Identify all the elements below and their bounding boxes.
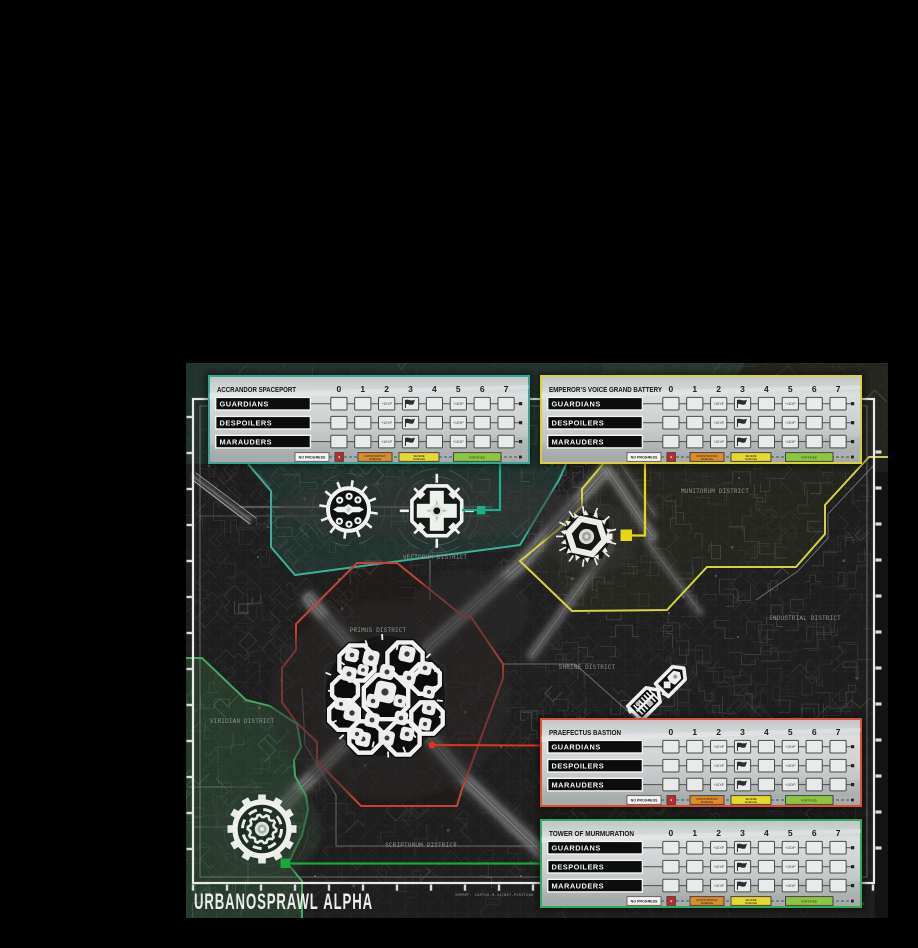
svg-text:URBANOSPRAWL ALPHA: URBANOSPRAWL ALPHA — [194, 889, 373, 914]
svg-text:3: 3 — [740, 828, 745, 838]
svg-text:FORTIFIED: FORTIFIED — [801, 455, 818, 459]
svg-text:+1EXP: +1EXP — [785, 440, 796, 444]
svg-text:0: 0 — [669, 384, 674, 394]
svg-text:2: 2 — [716, 727, 721, 737]
svg-text:MARAUDERS: MARAUDERS — [552, 881, 605, 890]
svg-text:0: 0 — [669, 727, 674, 737]
svg-text:+1EXP: +1EXP — [713, 440, 724, 444]
svg-text:5: 5 — [788, 828, 793, 838]
svg-text:7: 7 — [504, 384, 509, 394]
svg-text:FORTIFIED: FORTIFIED — [469, 455, 486, 459]
svg-text:DAMAGE: DAMAGE — [745, 901, 757, 905]
svg-text:7: 7 — [836, 727, 841, 737]
svg-text:1: 1 — [692, 384, 697, 394]
svg-text:GUARDIANS: GUARDIANS — [552, 844, 601, 853]
svg-text:DESPOILERS: DESPOILERS — [552, 762, 605, 771]
svg-text:2: 2 — [716, 384, 721, 394]
svg-text:4: 4 — [764, 828, 769, 838]
svg-text:DAMAGE: DAMAGE — [701, 800, 713, 804]
svg-text:NO PROGRESS: NO PROGRESS — [631, 900, 658, 904]
svg-text:6: 6 — [812, 727, 817, 737]
svg-text:+1EXP: +1EXP — [453, 440, 464, 444]
svg-text:6: 6 — [480, 384, 485, 394]
svg-text:3: 3 — [740, 727, 745, 737]
svg-text:FORTIFIED: FORTIFIED — [801, 899, 818, 903]
svg-text:TOWER OF MURMURATION: TOWER OF MURMURATION — [549, 829, 634, 838]
svg-text:+1EXP: +1EXP — [381, 421, 392, 425]
svg-text:MARAUDERS: MARAUDERS — [552, 780, 605, 789]
svg-text:5: 5 — [788, 727, 793, 737]
svg-text:+1EXP: +1EXP — [785, 402, 796, 406]
svg-text:NO PROGRESS: NO PROGRESS — [299, 456, 326, 460]
svg-text:5: 5 — [456, 384, 461, 394]
svg-text:3: 3 — [408, 384, 413, 394]
svg-text:DAMAGE: DAMAGE — [413, 457, 425, 461]
svg-text:▼: ▼ — [670, 455, 673, 459]
svg-text:+1EXP: +1EXP — [381, 440, 392, 444]
svg-text:7: 7 — [836, 384, 841, 394]
svg-text:DESPOILERS: DESPOILERS — [552, 863, 605, 872]
svg-text:DAMAGE: DAMAGE — [701, 901, 713, 905]
svg-text:VECTORUM DISTRICT: VECTORUM DISTRICT — [403, 554, 467, 561]
svg-text:+1EXP: +1EXP — [713, 846, 724, 850]
svg-text:SCRIPTORUM DISTRICT: SCRIPTORUM DISTRICT — [385, 842, 457, 849]
svg-text:+1EXP: +1EXP — [713, 865, 724, 869]
svg-text:GUARDIANS: GUARDIANS — [552, 400, 601, 409]
svg-text:SHRINE DISTRICT: SHRINE DISTRICT — [559, 664, 616, 671]
svg-text:4: 4 — [432, 384, 437, 394]
svg-text:0: 0 — [337, 384, 342, 394]
svg-text:EMPEROR’S VOICE GRAND BATTERY: EMPEROR’S VOICE GRAND BATTERY — [549, 385, 662, 394]
svg-text:PRAEFECTUS BASTION: PRAEFECTUS BASTION — [549, 728, 621, 737]
svg-text:+1EXP: +1EXP — [785, 421, 796, 425]
svg-text:6: 6 — [812, 828, 817, 838]
svg-text:+1EXP: +1EXP — [713, 783, 724, 787]
svg-text:DAMAGE: DAMAGE — [369, 457, 381, 461]
svg-text:1: 1 — [360, 384, 365, 394]
svg-text:NO PROGRESS: NO PROGRESS — [631, 799, 658, 803]
svg-text:+1EXP: +1EXP — [785, 764, 796, 768]
svg-text:MARAUDERS: MARAUDERS — [552, 437, 605, 446]
svg-text:+1EXP: +1EXP — [453, 402, 464, 406]
svg-text:▼: ▼ — [670, 798, 673, 802]
svg-text:ACCRANDOR SPACEPORT: ACCRANDOR SPACEPORT — [217, 385, 296, 394]
svg-text:5: 5 — [788, 384, 793, 394]
svg-text:GUARDIANS: GUARDIANS — [552, 743, 601, 752]
svg-text:2: 2 — [384, 384, 389, 394]
svg-text:0: 0 — [669, 828, 674, 838]
svg-text:FORTIFIED: FORTIFIED — [801, 798, 818, 802]
svg-text:VIRIDIAN DISTRICT: VIRIDIAN DISTRICT — [210, 718, 274, 725]
svg-text:+1EXP: +1EXP — [785, 783, 796, 787]
svg-text:GUARDIANS: GUARDIANS — [220, 400, 269, 409]
svg-text:1: 1 — [692, 727, 697, 737]
svg-text:▼: ▼ — [338, 455, 341, 459]
svg-text:2: 2 — [716, 828, 721, 838]
svg-text:PRIMUS DISTRICT: PRIMUS DISTRICT — [350, 627, 407, 634]
svg-text:DAMAGE: DAMAGE — [701, 457, 713, 461]
svg-text:+1EXP: +1EXP — [785, 865, 796, 869]
svg-text:INDUSTRIAL DISTRICT: INDUSTRIAL DISTRICT — [769, 615, 841, 622]
svg-text:DAMAGE: DAMAGE — [745, 800, 757, 804]
svg-text:DAMAGE: DAMAGE — [745, 457, 757, 461]
svg-text:+1EXP: +1EXP — [713, 884, 724, 888]
svg-text:+1EXP: +1EXP — [713, 745, 724, 749]
svg-text:3: 3 — [740, 384, 745, 394]
svg-text:+1EXP: +1EXP — [453, 421, 464, 425]
svg-text:DESPOILERS: DESPOILERS — [552, 419, 605, 428]
svg-text:DESPOILERS: DESPOILERS — [220, 419, 273, 428]
svg-text:MARAUDERS: MARAUDERS — [220, 437, 273, 446]
svg-text:IMPREF. CARTOG-M-41/NE7-POSITO: IMPREF. CARTOG-M-41/NE7-POSITONS — [455, 893, 534, 898]
svg-text:1: 1 — [692, 828, 697, 838]
svg-text:7: 7 — [836, 828, 841, 838]
svg-text:4: 4 — [764, 384, 769, 394]
svg-text:+1EXP: +1EXP — [785, 884, 796, 888]
svg-text:+1EXP: +1EXP — [713, 764, 724, 768]
svg-text:+1EXP: +1EXP — [785, 745, 796, 749]
svg-text:6: 6 — [812, 384, 817, 394]
svg-text:4: 4 — [764, 727, 769, 737]
svg-text:MUNITORUM DISTRICT: MUNITORUM DISTRICT — [681, 488, 749, 495]
svg-text:+1EXP: +1EXP — [381, 402, 392, 406]
svg-text:+1EXP: +1EXP — [713, 402, 724, 406]
svg-text:+1EXP: +1EXP — [785, 846, 796, 850]
svg-text:▼: ▼ — [670, 899, 673, 903]
svg-text:NO PROGRESS: NO PROGRESS — [631, 456, 658, 460]
svg-text:+1EXP: +1EXP — [713, 421, 724, 425]
